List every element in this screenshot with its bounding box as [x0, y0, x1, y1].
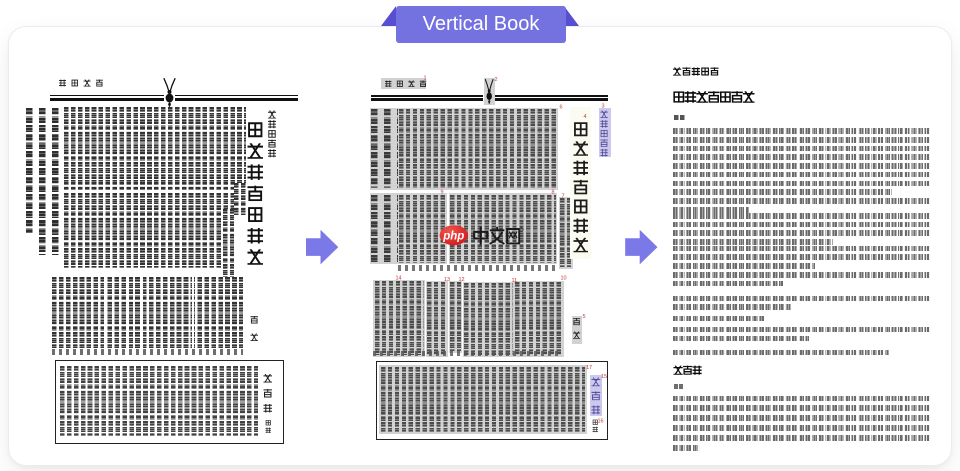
svg-text:17: 17: [586, 365, 592, 371]
svg-text:1: 1: [424, 76, 427, 82]
svg-text:9: 9: [441, 190, 444, 196]
svg-text:6: 6: [560, 105, 563, 111]
svg-text:14: 14: [396, 276, 402, 282]
svg-text:11: 11: [512, 278, 518, 284]
svg-text:10: 10: [561, 276, 567, 282]
svg-text:4: 4: [584, 114, 587, 120]
svg-text:7: 7: [562, 194, 565, 200]
svg-text:12: 12: [459, 277, 465, 283]
svg-text:5: 5: [583, 314, 586, 320]
svg-text:15: 15: [601, 374, 607, 380]
svg-text:16: 16: [598, 419, 604, 425]
svg-text:php: php: [442, 230, 464, 242]
svg-text:3: 3: [602, 104, 605, 110]
svg-text:13: 13: [444, 277, 450, 283]
svg-text:8: 8: [552, 190, 555, 196]
svg-text:2: 2: [495, 77, 498, 83]
